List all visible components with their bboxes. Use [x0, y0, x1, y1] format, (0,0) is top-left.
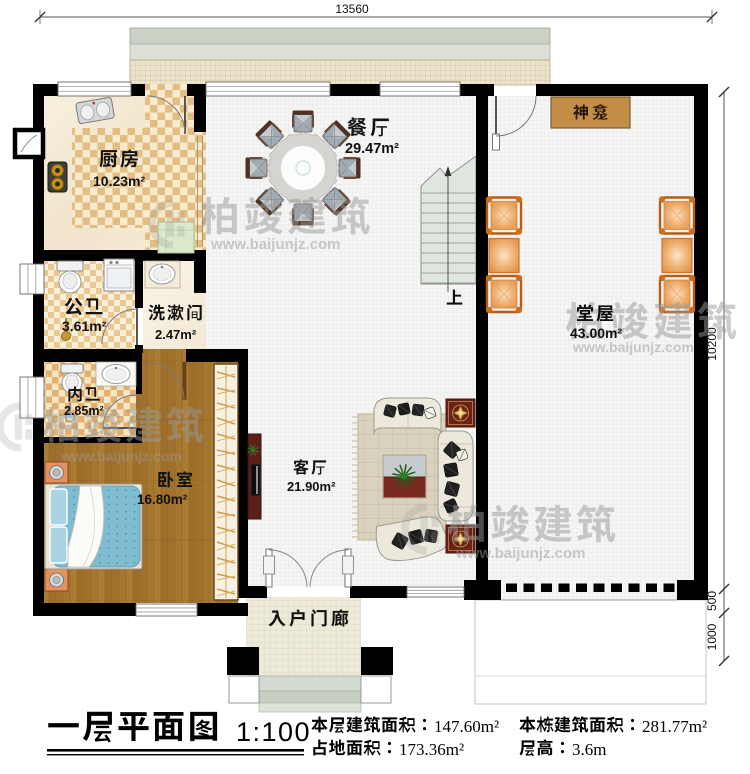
svg-text:2.85m²: 2.85m² [64, 404, 104, 418]
svg-text:2.47m²: 2.47m² [155, 327, 197, 342]
svg-text:29.47m²: 29.47m² [345, 141, 399, 157]
svg-text:1:100: 1:100 [236, 717, 311, 747]
svg-text:www.baijunjz.com: www.baijunjz.com [210, 236, 340, 253]
svg-text:43.00m²: 43.00m² [570, 325, 622, 341]
svg-text:13560: 13560 [335, 2, 369, 16]
svg-text:www.baijunjz.com: www.baijunjz.com [60, 448, 182, 464]
svg-text:3.6m: 3.6m [572, 740, 606, 759]
svg-text:1000: 1000 [705, 623, 719, 650]
svg-text:147.60m²: 147.60m² [434, 717, 499, 736]
svg-text:10.23m²: 10.23m² [93, 173, 145, 189]
svg-text:500: 500 [705, 591, 719, 611]
svg-text:3.61m²: 3.61m² [62, 318, 107, 334]
svg-text:www.baijunjz.com: www.baijunjz.com [572, 339, 694, 355]
svg-text:173.36m²: 173.36m² [399, 740, 464, 759]
svg-text:21.90m²: 21.90m² [287, 479, 336, 494]
svg-text:16.80m²: 16.80m² [137, 492, 188, 507]
svg-text:281.77m²: 281.77m² [642, 717, 707, 736]
svg-text:www.baijunjz.com: www.baijunjz.com [455, 545, 585, 562]
